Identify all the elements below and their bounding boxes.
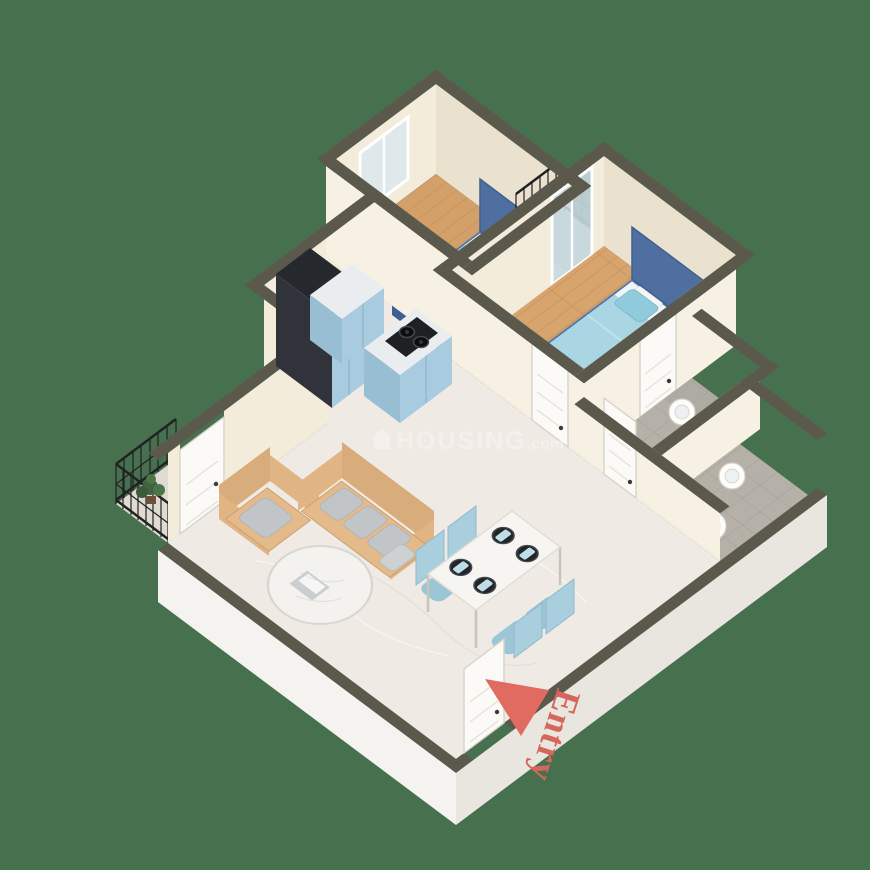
floor-plan-3d-render: Entry HOUSING.com: [0, 0, 870, 870]
screenshot-canvas: Entry HOUSING.com: [0, 0, 870, 870]
door-handle-icon: [214, 482, 218, 486]
